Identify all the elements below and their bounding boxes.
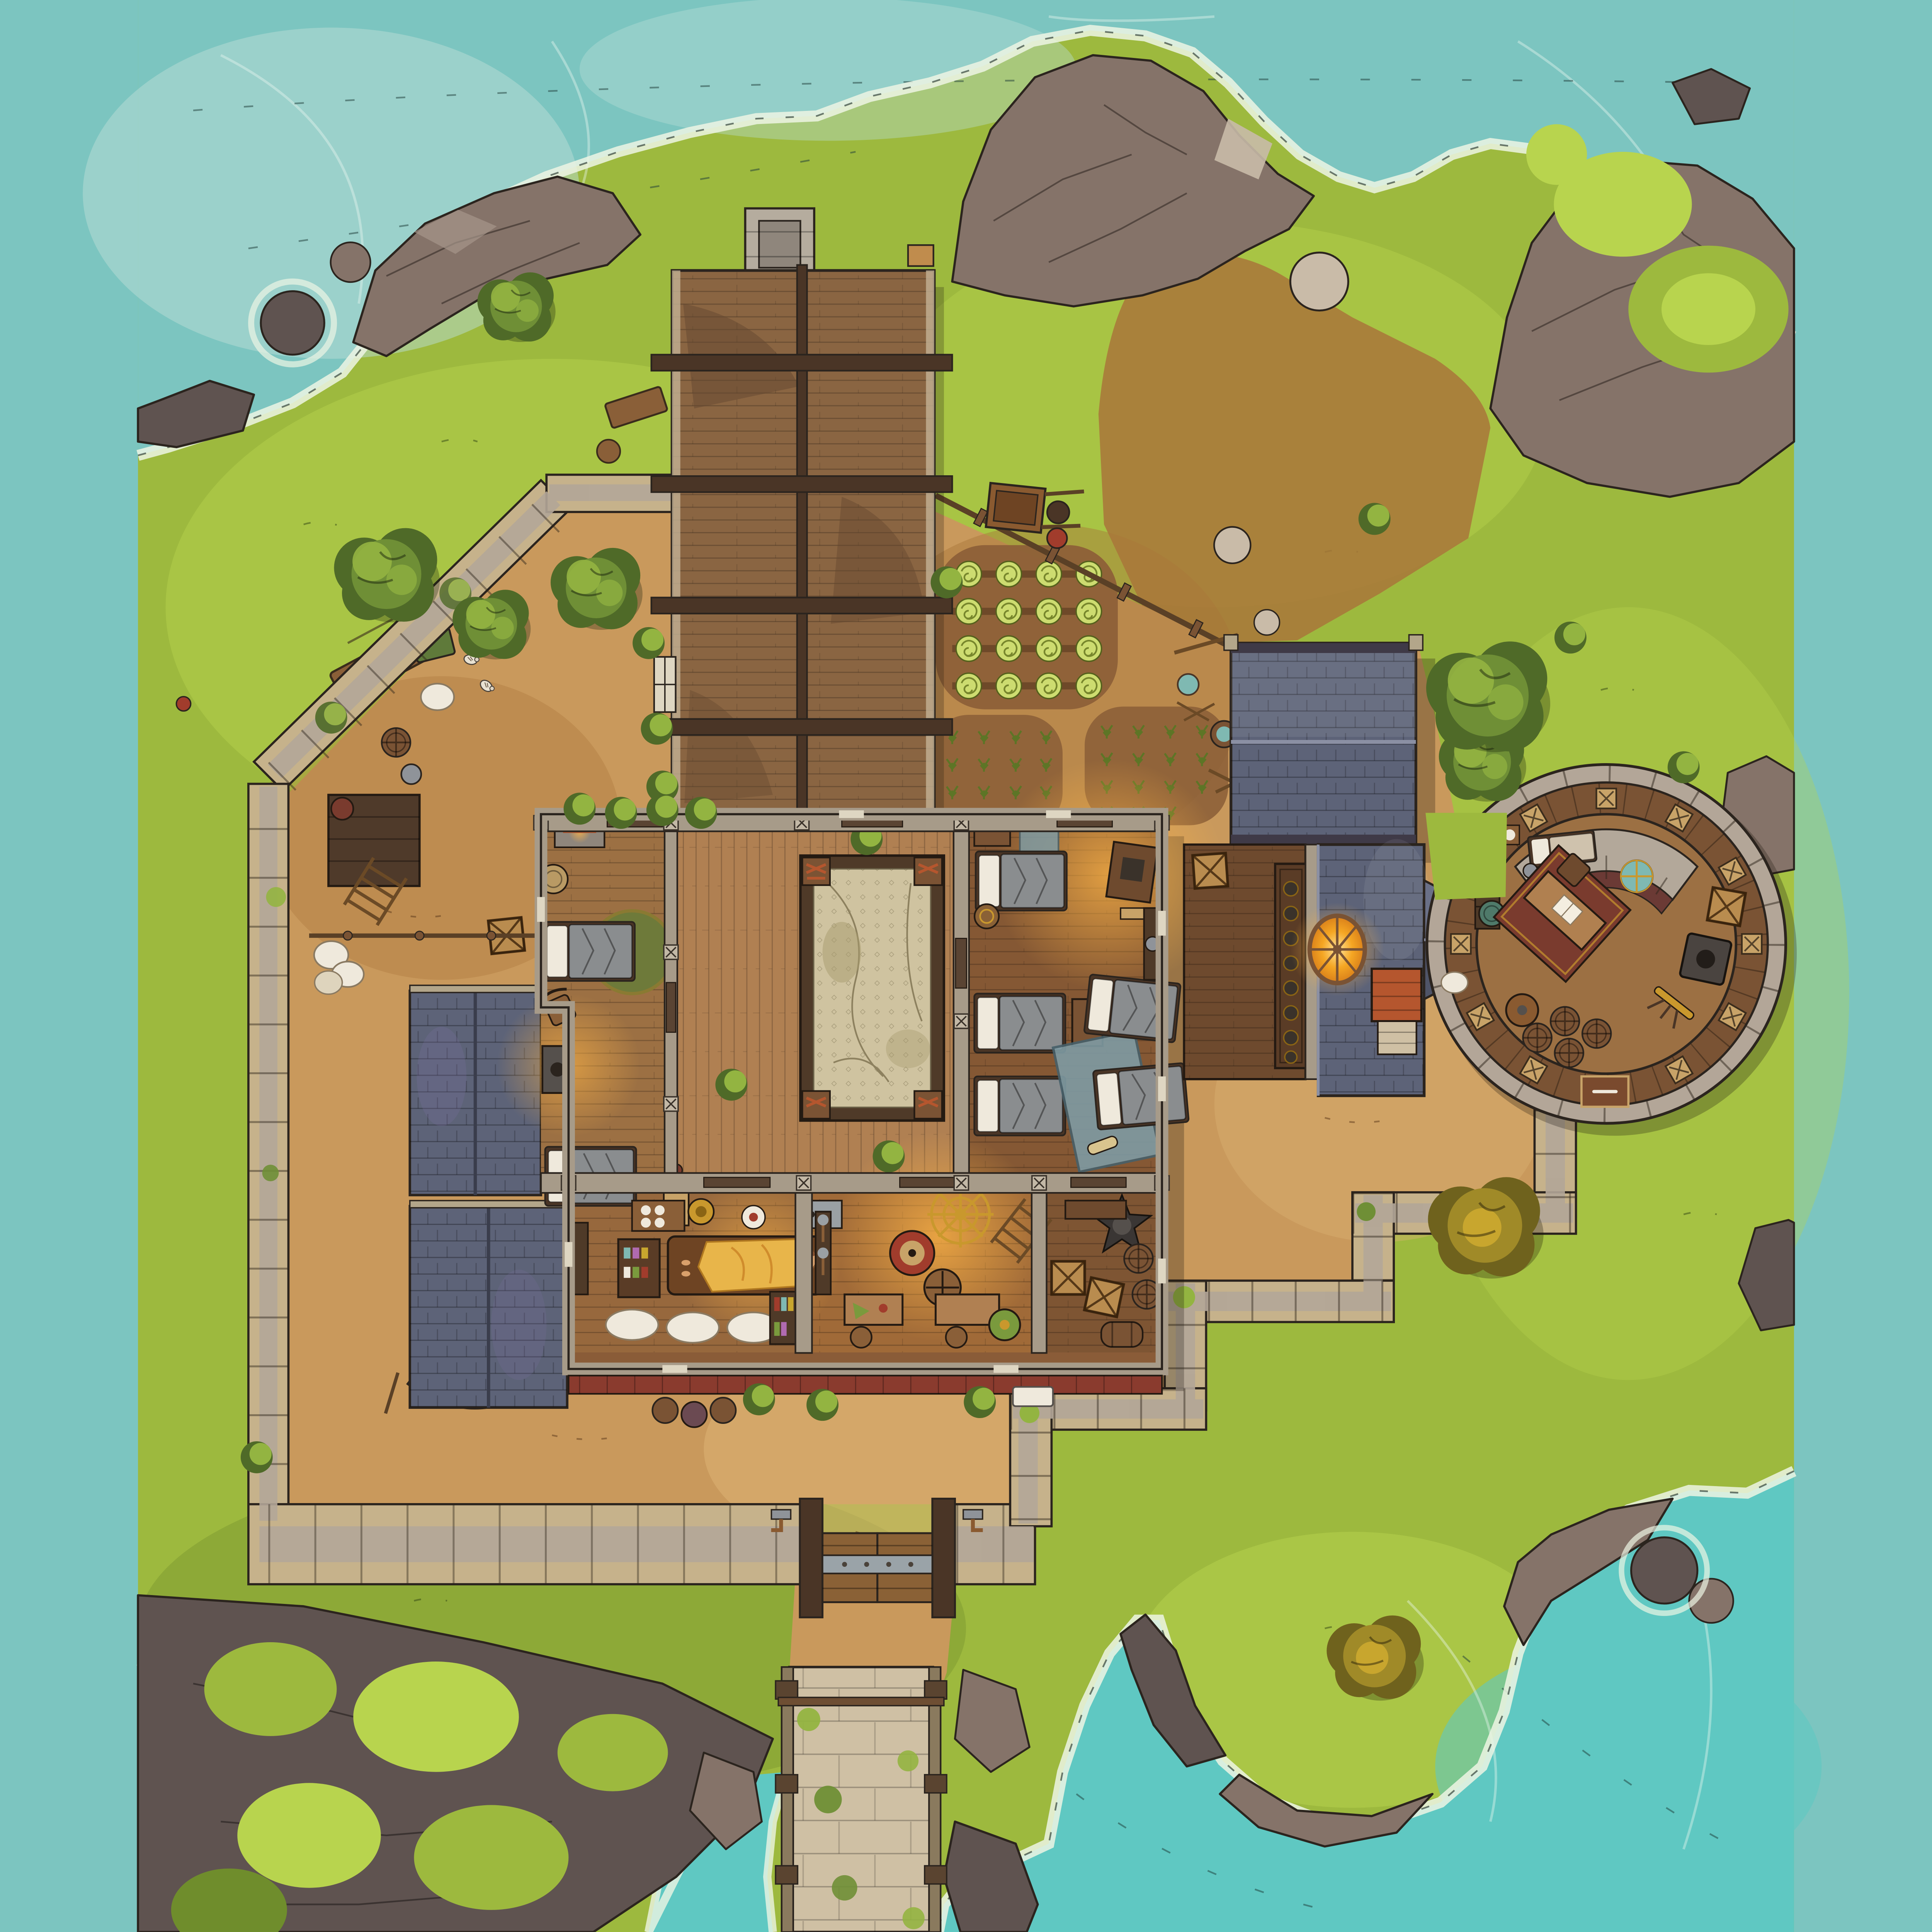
white-boulder (1214, 527, 1250, 563)
bucket (401, 764, 421, 784)
chapel-annex (1224, 635, 1423, 845)
sack (421, 684, 454, 710)
barn-ridge-beam (797, 265, 807, 842)
rose-window (1310, 916, 1365, 983)
gate-doors (823, 1533, 932, 1602)
battle-map (0, 0, 1932, 1932)
main-hall (497, 759, 1226, 1427)
longhouse-barn (633, 208, 952, 853)
map-canvas (0, 0, 1932, 1932)
stove (1680, 933, 1732, 985)
south-awning (568, 1376, 1162, 1394)
stool (597, 440, 620, 463)
red-bowl (1047, 528, 1067, 548)
stable-roof-south (410, 1201, 567, 1408)
causeway (776, 1667, 947, 1932)
chapel-porch (1372, 969, 1422, 1054)
globe (1621, 860, 1653, 892)
south-bench (1013, 1387, 1053, 1406)
barn-window (654, 657, 676, 712)
desk (1106, 842, 1158, 903)
grass-pocket (1425, 813, 1507, 900)
weapon-rack (816, 1212, 831, 1294)
